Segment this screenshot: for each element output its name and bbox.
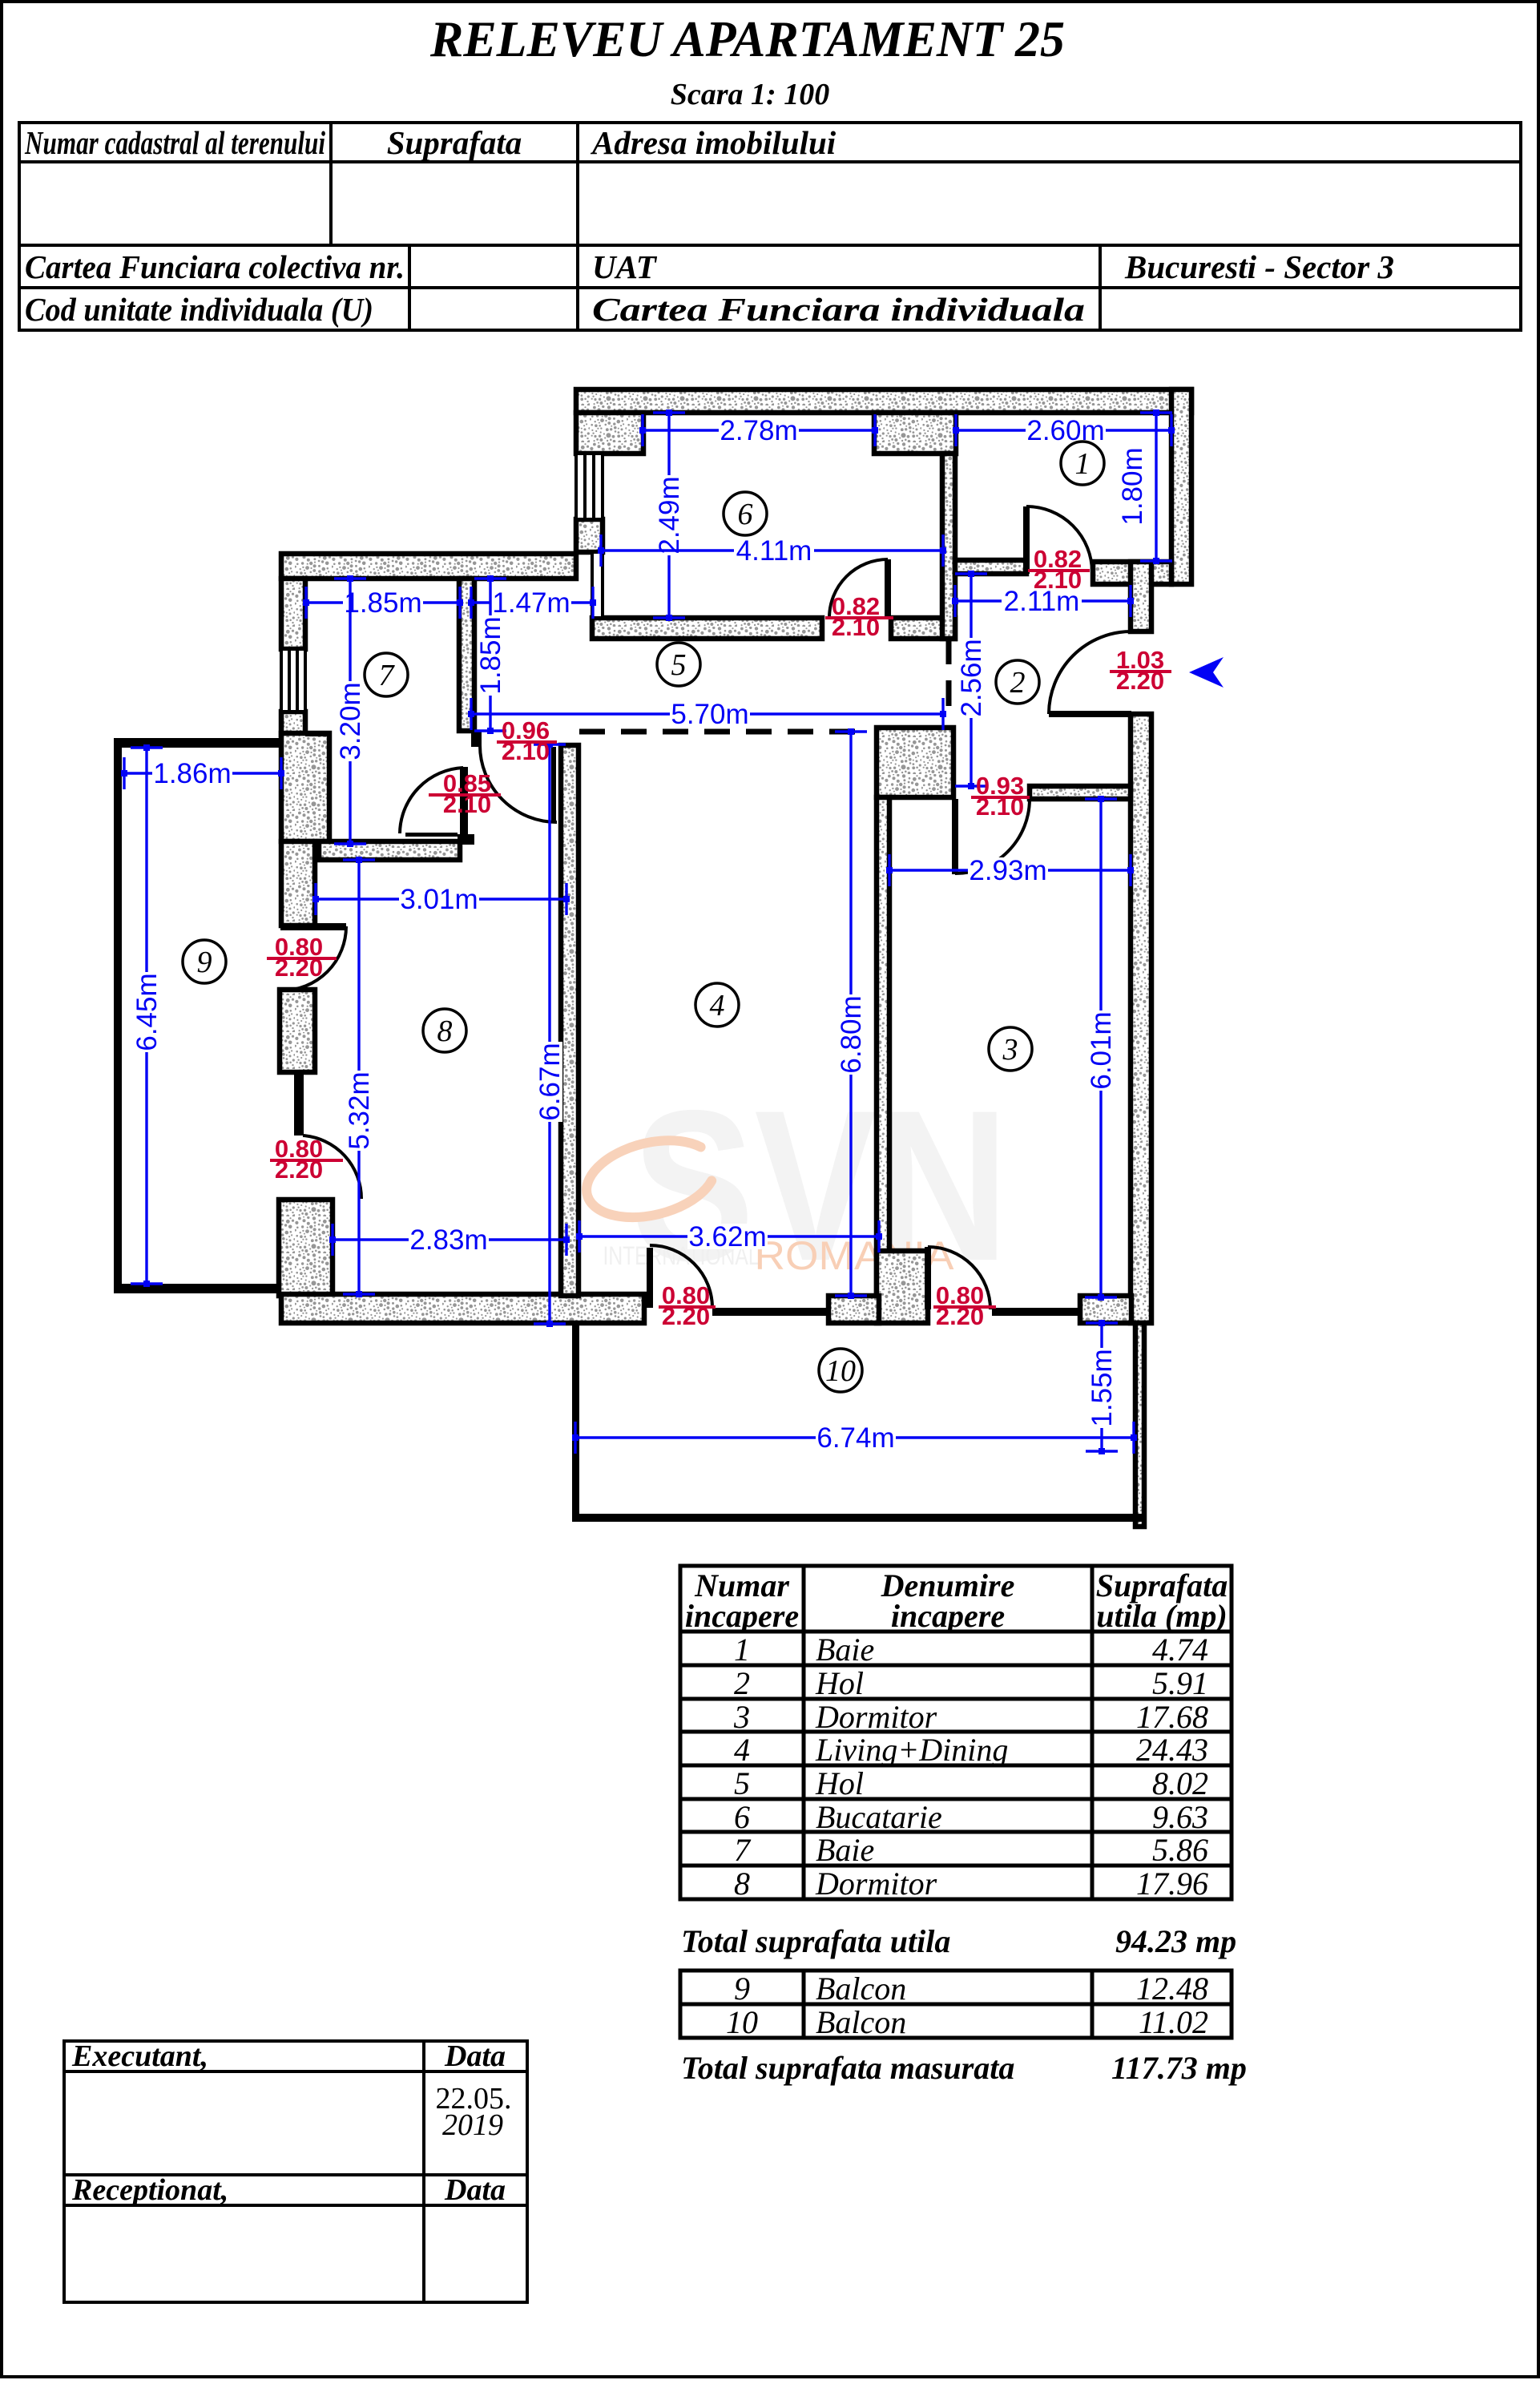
svg-text:6: 6 xyxy=(738,498,753,531)
svg-text:1.55m: 1.55m xyxy=(1086,1349,1118,1426)
svg-text:2.83m: 2.83m xyxy=(409,1224,487,1256)
svg-text:Cartea Funciara individuala: Cartea Funciara individuala xyxy=(592,291,1085,328)
svg-text:2.49m: 2.49m xyxy=(654,476,685,554)
svg-text:5.86: 5.86 xyxy=(1152,1832,1208,1868)
svg-text:4: 4 xyxy=(734,1732,750,1768)
svg-text:Scara 1: 100: Scara 1: 100 xyxy=(671,78,829,111)
svg-text:2: 2 xyxy=(1010,666,1026,700)
svg-text:24.43: 24.43 xyxy=(1136,1732,1208,1768)
svg-text:Dormitor: Dormitor xyxy=(815,1699,937,1735)
svg-text:5: 5 xyxy=(671,648,687,682)
svg-text:Data: Data xyxy=(444,2039,506,2073)
svg-text:1: 1 xyxy=(1075,447,1090,481)
svg-text:2: 2 xyxy=(734,1665,750,1701)
svg-text:1.47m: 1.47m xyxy=(492,587,570,619)
svg-text:Baie: Baie xyxy=(816,1832,874,1868)
svg-text:6.45m: 6.45m xyxy=(131,973,163,1051)
svg-text:Executant,: Executant, xyxy=(71,2039,208,2073)
svg-text:Adresa imobilului: Adresa imobilului xyxy=(590,124,837,161)
svg-text:incapere: incapere xyxy=(685,1598,799,1634)
svg-text:RELEVEU APARTAMENT 25: RELEVEU APARTAMENT 25 xyxy=(429,10,1065,67)
svg-text:5: 5 xyxy=(734,1765,750,1801)
svg-text:117.73 mp: 117.73 mp xyxy=(1111,2050,1247,2086)
svg-text:Hol: Hol xyxy=(815,1765,864,1801)
svg-text:3: 3 xyxy=(733,1699,750,1735)
svg-text:Balcon: Balcon xyxy=(816,2004,906,2040)
svg-text:5.32m: 5.32m xyxy=(344,1071,375,1149)
svg-text:Data: Data xyxy=(444,2173,506,2207)
svg-text:5.70m: 5.70m xyxy=(671,699,748,730)
svg-text:3.20m: 3.20m xyxy=(335,682,366,760)
svg-text:2019: 2019 xyxy=(442,2108,503,2142)
svg-text:Bucatarie: Bucatarie xyxy=(816,1799,942,1835)
svg-text:8: 8 xyxy=(734,1866,750,1902)
svg-text:1.86m: 1.86m xyxy=(153,758,231,789)
svg-text:UAT: UAT xyxy=(592,248,658,285)
svg-text:Balcon: Balcon xyxy=(816,1971,906,2007)
svg-text:6.01m: 6.01m xyxy=(1086,1011,1117,1089)
svg-text:17.68: 17.68 xyxy=(1136,1699,1208,1735)
svg-text:utila (mp): utila (mp) xyxy=(1096,1598,1227,1634)
svg-text:9: 9 xyxy=(734,1971,750,2007)
svg-text:6.80m: 6.80m xyxy=(836,995,867,1073)
svg-text:4.74: 4.74 xyxy=(1152,1632,1208,1668)
svg-text:2.93m: 2.93m xyxy=(969,855,1046,886)
svg-text:Suprafata: Suprafata xyxy=(387,124,522,161)
svg-text:2.56m: 2.56m xyxy=(956,639,987,716)
svg-text:6.67m: 6.67m xyxy=(534,1043,566,1120)
svg-text:Dormitor: Dormitor xyxy=(815,1866,937,1902)
svg-text:1.85m: 1.85m xyxy=(475,616,506,694)
svg-text:Numar cadastral al terenului: Numar cadastral al terenului xyxy=(24,124,325,161)
svg-text:Total suprafata masurata: Total suprafata masurata xyxy=(681,2050,1014,2086)
svg-text:Living+Dining: Living+Dining xyxy=(815,1732,1008,1768)
svg-text:10: 10 xyxy=(825,1354,856,1388)
svg-text:1.80m: 1.80m xyxy=(1117,447,1148,525)
svg-text:2.60m: 2.60m xyxy=(1026,415,1104,446)
svg-text:5.91: 5.91 xyxy=(1152,1665,1208,1701)
svg-text:Baie: Baie xyxy=(816,1632,874,1668)
svg-text:6.74m: 6.74m xyxy=(816,1422,894,1454)
svg-text:1.85m: 1.85m xyxy=(344,587,421,619)
svg-text:4: 4 xyxy=(710,989,725,1023)
svg-text:Cod unitate individuala (U): Cod unitate individuala (U) xyxy=(25,291,373,328)
svg-text:8: 8 xyxy=(437,1015,453,1048)
svg-text:3.62m: 3.62m xyxy=(688,1221,766,1253)
svg-text:2.78m: 2.78m xyxy=(720,415,797,446)
svg-text:Total suprafata utila: Total suprafata utila xyxy=(681,1923,950,1959)
svg-text:incapere: incapere xyxy=(891,1598,1005,1634)
svg-text:Bucuresti - Sector 3: Bucuresti - Sector 3 xyxy=(1124,248,1394,285)
svg-text:8.02: 8.02 xyxy=(1152,1765,1208,1801)
svg-text:3: 3 xyxy=(1002,1033,1018,1067)
svg-text:4.11m: 4.11m xyxy=(736,535,812,567)
svg-text:94.23 mp: 94.23 mp xyxy=(1115,1923,1236,1959)
svg-text:9.63: 9.63 xyxy=(1152,1799,1208,1835)
svg-text:7: 7 xyxy=(734,1832,752,1868)
svg-text:Hol: Hol xyxy=(815,1665,864,1701)
svg-text:17.96: 17.96 xyxy=(1136,1866,1208,1902)
svg-text:Cartea Funciara colectiva nr.: Cartea Funciara colectiva nr. xyxy=(25,248,405,285)
svg-text:10: 10 xyxy=(726,2004,758,2040)
svg-text:3.01m: 3.01m xyxy=(400,884,478,915)
svg-text:11.02: 11.02 xyxy=(1139,2004,1208,2040)
svg-text:12.48: 12.48 xyxy=(1136,1971,1208,2007)
svg-text:6: 6 xyxy=(734,1799,750,1835)
svg-text:7: 7 xyxy=(379,659,396,692)
svg-text:9: 9 xyxy=(197,946,212,979)
svg-text:1: 1 xyxy=(734,1632,750,1668)
svg-text:Receptionat,: Receptionat, xyxy=(71,2173,228,2207)
